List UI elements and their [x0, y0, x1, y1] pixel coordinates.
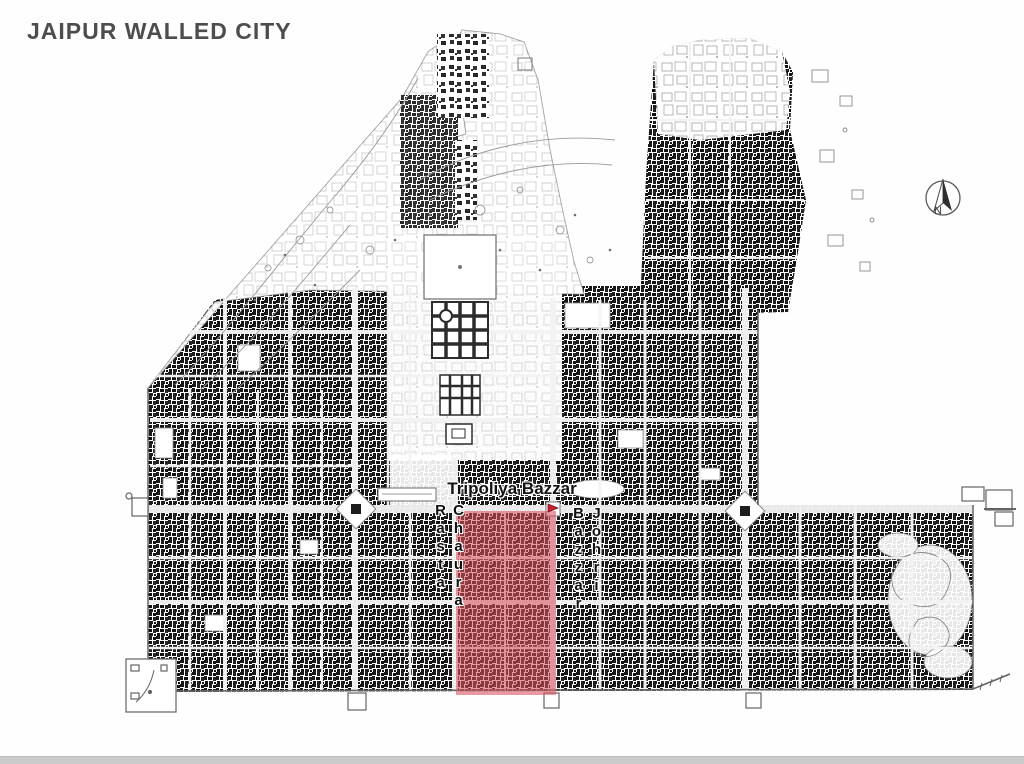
highlighted-bazaar-zone [456, 511, 556, 695]
north-letter: N [934, 205, 942, 217]
east-scatter [812, 70, 874, 271]
city-map: N [0, 0, 1024, 764]
garden-grid [432, 302, 488, 358]
north-arrow-icon: N [926, 179, 960, 217]
label-chaura-rasta: Chaura Rasta [431, 502, 467, 704]
south-gate-1 [348, 693, 366, 710]
label-johri-bazzar: Johri Bazzar [569, 505, 605, 697]
southwest-enclosure [126, 659, 176, 712]
city-fabric [148, 30, 973, 692]
south-gate-2 [544, 693, 559, 708]
map-page: N JAIPUR WALLED CITY Tripoliya Bazzar Ch… [0, 0, 1024, 764]
bottom-border-strip [0, 756, 1024, 764]
west-gate [132, 498, 148, 516]
label-tripoliya-bazzar: Tripoliya Bazzar [430, 479, 594, 499]
page-title: JAIPUR WALLED CITY [27, 18, 292, 45]
south-gate-3 [746, 693, 761, 708]
